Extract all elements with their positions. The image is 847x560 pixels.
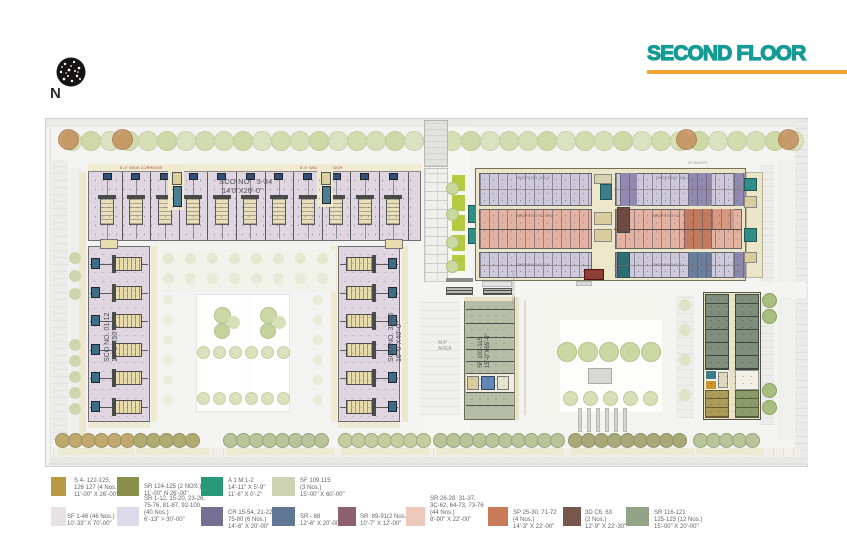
svg-text:N: N (50, 85, 61, 100)
